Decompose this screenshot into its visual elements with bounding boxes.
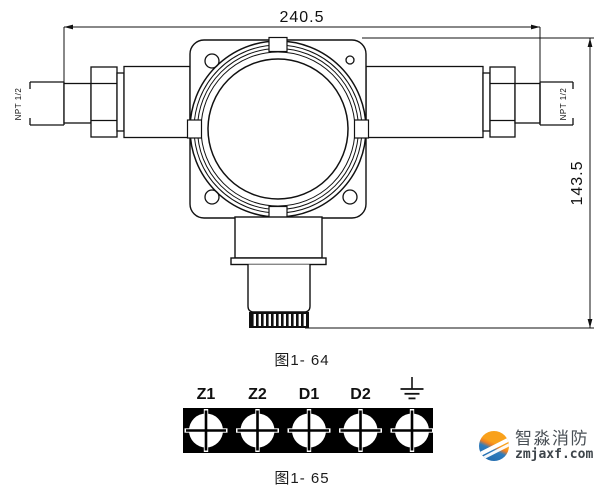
left-thread-stub bbox=[30, 82, 64, 125]
terminal-label-d2: D2 bbox=[350, 386, 371, 403]
left-thread-label: NPT 1/2 bbox=[14, 88, 23, 121]
dim-height-value: 143.5 bbox=[569, 160, 586, 205]
left-arm bbox=[124, 67, 190, 138]
cover-lug-right bbox=[355, 120, 369, 138]
brand-domain: zmjaxf.com bbox=[515, 448, 593, 462]
figure-caption-65: 图1- 65 bbox=[240, 467, 364, 488]
right-arm bbox=[366, 67, 483, 138]
document-page: 240.5 143.5 NPT 1/2 bbox=[0, 0, 609, 493]
right-coupling bbox=[515, 84, 540, 124]
watermark: 智淼消防 zmjaxf.com bbox=[479, 430, 593, 461]
sensor-housing bbox=[248, 265, 310, 313]
terminal-label-z2: Z2 bbox=[248, 386, 267, 403]
right-hex-nut bbox=[490, 67, 515, 137]
right-conduit-assembly bbox=[366, 67, 573, 138]
right-thread-label: NPT 1/2 bbox=[559, 88, 568, 121]
brand-name: 智淼消防 bbox=[515, 430, 593, 448]
brand-logo-icon bbox=[479, 431, 509, 461]
figure-caption-64: 图1- 64 bbox=[240, 349, 364, 370]
earth-ground-icon bbox=[401, 377, 424, 398]
dim-width-value: 240.5 bbox=[279, 9, 324, 26]
terminal-label-z1: Z1 bbox=[197, 386, 216, 403]
left-step bbox=[117, 73, 124, 131]
terminal-block: Z1 Z2 D1 D2 bbox=[183, 377, 434, 453]
sintered-filter bbox=[250, 313, 308, 327]
sensor-neck bbox=[235, 217, 322, 258]
left-coupling bbox=[64, 84, 91, 124]
cover-lug-top bbox=[269, 38, 287, 52]
left-hex-nut bbox=[91, 67, 117, 137]
cover-lug-left bbox=[188, 120, 202, 138]
terminal-label-d1: D1 bbox=[299, 386, 320, 403]
sensor-stack bbox=[231, 217, 326, 327]
left-conduit-assembly bbox=[30, 67, 190, 138]
right-thread-stub bbox=[540, 82, 573, 125]
sensor-lip bbox=[231, 258, 326, 265]
right-step bbox=[483, 73, 490, 131]
technical-drawing: 240.5 143.5 NPT 1/2 bbox=[0, 0, 609, 493]
